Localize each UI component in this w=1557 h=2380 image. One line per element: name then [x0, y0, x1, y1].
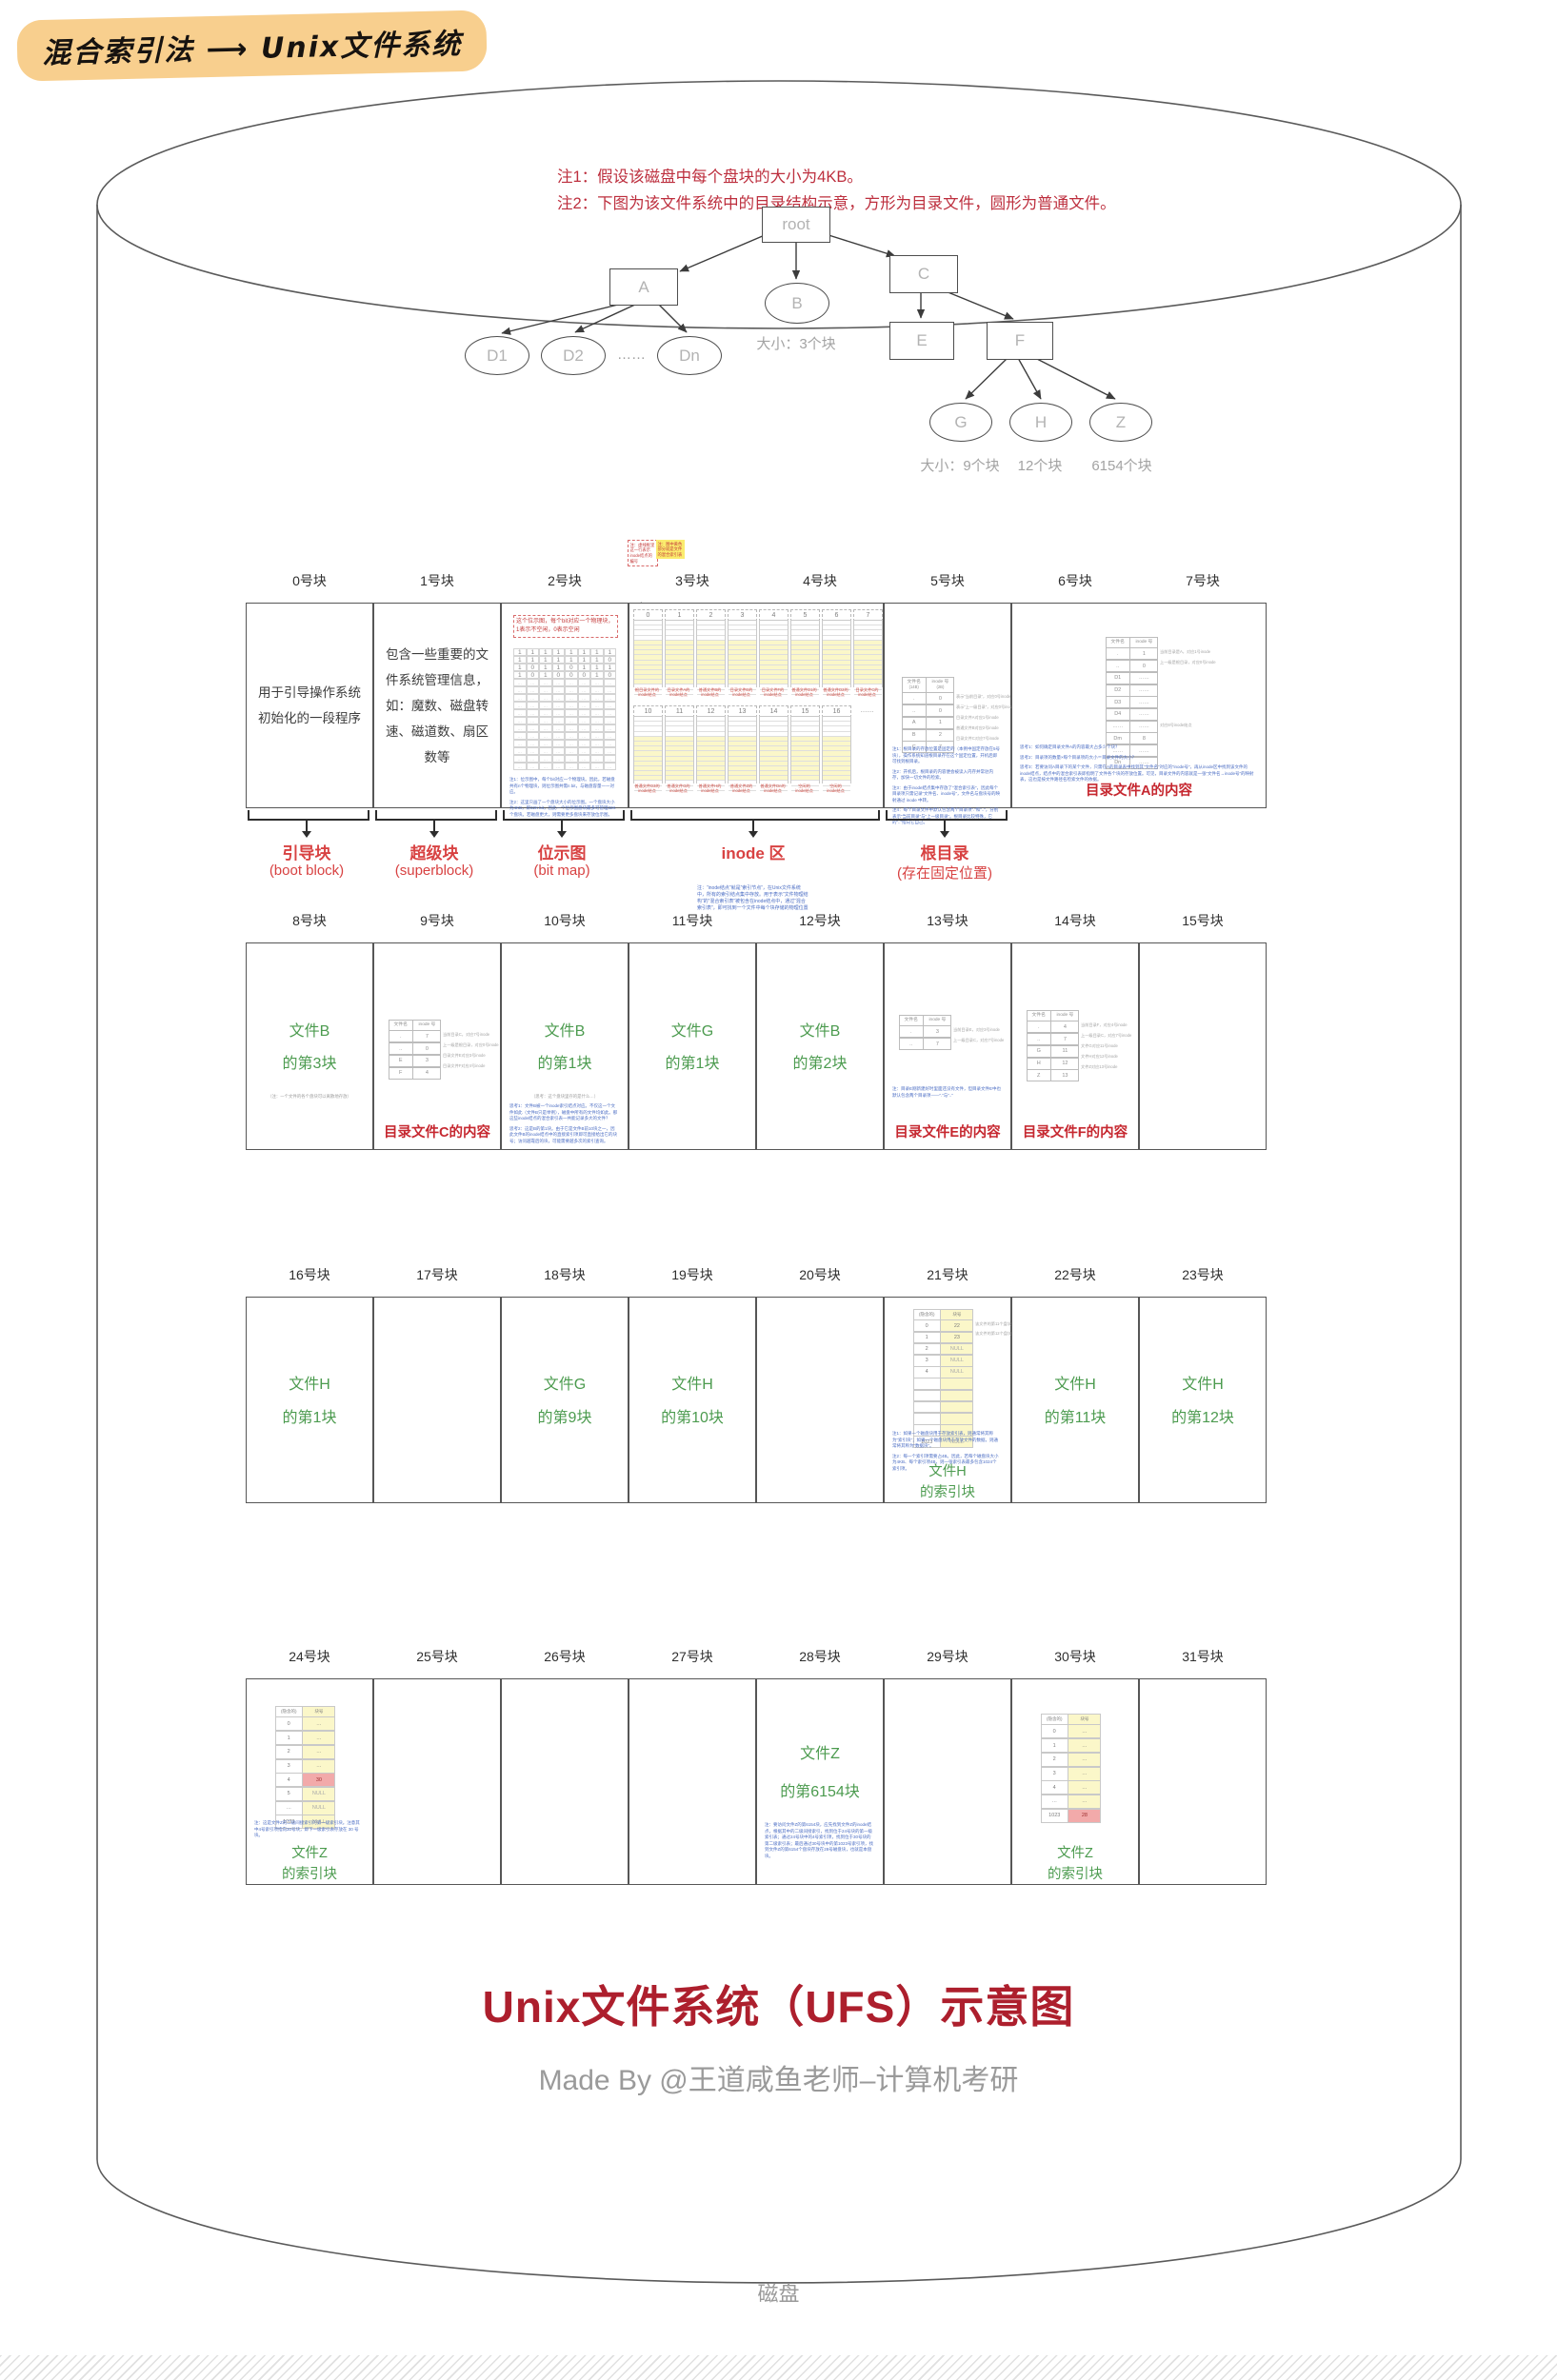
block-box	[629, 1678, 756, 1885]
blue-note: 思考3：若要访问A目录下的某个文件，只需在A的目录表中找到其“文件名”对应的“i…	[1020, 764, 1256, 783]
dir-row-note: 表示“当前目录”，对应0号inode	[956, 694, 1010, 700]
dir-col-title: 文件名	[905, 1018, 918, 1022]
dir-filename-cell: .	[1027, 1021, 1051, 1033]
bitmap-cell: …	[539, 702, 552, 709]
bitmap-cell: …	[552, 717, 566, 724]
block-box: 文件H的第11块	[1011, 1297, 1139, 1503]
bitmap-cell: …	[565, 686, 578, 694]
block-header: 7号块	[1139, 571, 1267, 590]
block-header: 22号块	[1011, 1265, 1139, 1284]
block-header: 8号块	[246, 911, 373, 930]
dir-content-caption: 目录文件F的内容	[1012, 1121, 1138, 1141]
inode-caption: 普通文件Z的inode结点	[726, 783, 757, 794]
block-description: 用于引导操作系统初始化的一段程序	[256, 604, 363, 807]
bitmap-cell: 0	[527, 671, 540, 679]
index-table-row: 022	[913, 1320, 973, 1332]
dir-inode-cell: 8	[1129, 732, 1158, 744]
dir-table-row: H12	[1027, 1058, 1079, 1070]
index-block-cell: …	[1068, 1767, 1101, 1781]
blue-notes: 注：目录E刚新建好时里面还没有文件，但目录文件E中也默认包含两个目录项——“.”…	[892, 1086, 1001, 1102]
dir-filename-cell: D3	[1106, 696, 1130, 708]
block-box	[1139, 1678, 1267, 1885]
bitmap-cell: …	[604, 702, 617, 709]
block-box: 文件名inode 号.4..7G11H12Z13当前目录F，对应4号inode上…	[1011, 942, 1139, 1150]
bitmap-cell: 1	[552, 656, 566, 664]
index-table-row: 3…	[1041, 1767, 1101, 1781]
file-block-label: 文件G	[629, 1018, 755, 1041]
file-block-label: 的第9块	[502, 1404, 628, 1427]
inode-caption-line: inode结点	[820, 788, 851, 793]
bitmap-cell: 1	[578, 648, 591, 656]
tree-node-dots: ……	[609, 345, 653, 364]
block-box	[756, 1297, 884, 1503]
dir-row-note: 当前目录是A，对应1号inode	[1160, 649, 1210, 655]
block-box: (隐含的)块号0…1…2…3…4305NULL…NULL1023NULL文件Z的…	[246, 1678, 373, 1885]
bitmap-cell: …	[552, 694, 566, 702]
dir-content-caption: 目录文件C的内容	[374, 1121, 500, 1141]
file-block-label: 的第12块	[1140, 1404, 1266, 1427]
tree-edge	[658, 304, 687, 332]
bitmap-cell: …	[604, 755, 617, 763]
dir-inode-cell: 1	[926, 717, 954, 729]
index-table-header-row: (隐含的)块号	[275, 1706, 335, 1717]
bitmap-cell: …	[539, 679, 552, 686]
index-table-row: 102328	[1041, 1809, 1101, 1823]
bitmap-cell: …	[527, 763, 540, 770]
block-header: 12号块	[756, 911, 884, 930]
index-table-row: 2…	[275, 1745, 335, 1759]
bitmap-cell: …	[513, 740, 527, 747]
bitmap-cell: …	[578, 717, 591, 724]
tree-edge	[966, 358, 1008, 399]
dir-filename-cell: ..	[902, 704, 927, 717]
bitmap-cell: 0	[552, 671, 566, 679]
dir-inode-cell: ……	[1129, 684, 1158, 697]
legend-title: 引导块	[283, 840, 331, 863]
index-logical-cell: 0	[913, 1319, 941, 1332]
dir-table-row: D1……	[1106, 672, 1158, 684]
dir-table-row: D4……	[1106, 708, 1158, 721]
file-block-label: 文件H	[629, 1371, 755, 1394]
dir-table-row: ..7	[899, 1038, 951, 1050]
dir-inode-cell: 0	[1129, 660, 1158, 672]
bitmap-cell: 1	[565, 648, 578, 656]
blue-notes: 注1：如果一个磁盘块用于存放索引表，则通常将其称为“索引块”；如果一个磁盘块用于…	[892, 1431, 1001, 1476]
block-box: 0根目录文件的inode结点1目录文件A的inode结点2普通文件B的inode…	[629, 603, 884, 808]
bitmap-cell: …	[578, 724, 591, 732]
block-box	[373, 1678, 501, 1885]
bitmap-cell: …	[565, 755, 578, 763]
file-block-label: 的第1块	[629, 1050, 755, 1073]
block-header: 28号块	[756, 1647, 884, 1666]
index-block-cell: NULL	[302, 1801, 335, 1815]
bitmap-cell: 1	[578, 656, 591, 664]
bitmap-cell: 1	[513, 671, 527, 679]
bitmap-cell: …	[604, 679, 617, 686]
inode-yellow-note: 注：图中黄色部分就是文件的混合索引表	[656, 540, 685, 559]
bitmap-cell: …	[604, 740, 617, 747]
block-header: 1号块	[373, 571, 501, 590]
inode-caption-line: inode结点	[726, 788, 757, 793]
blue-note: 注2：每一个索引项需要占4B。因此，若每个磁盘块大小为4KB、每个索引项4B，则…	[892, 1454, 1001, 1473]
inode-caption: 普通文件D2的inode结点	[820, 687, 851, 698]
block-header: 31号块	[1139, 1647, 1267, 1666]
blue-notes: 思考1：文件B被一个inode索引结点对应。不仅这一个文件如此（文件B只是举例）…	[509, 1103, 618, 1148]
legend-bracket	[375, 810, 497, 821]
bitmap-cell: …	[590, 740, 604, 747]
dir-inode-cell: 2	[926, 729, 954, 742]
bitmap-cell: 1	[513, 664, 527, 671]
index-block-cell: NULL	[940, 1343, 973, 1356]
index-block-caption: 的索引块	[885, 1481, 1010, 1501]
dir-table-header-cell: inode 号	[923, 1015, 951, 1026]
inode-caption-line: inode结点	[694, 788, 726, 793]
blue-note: 思考2：目录项的数量×每个目录项的大小＝目录文件的大小？	[1020, 755, 1256, 762]
dir-table-row: ..0	[902, 704, 954, 717]
block-header: 21号块	[884, 1265, 1011, 1284]
bitmap-cell: …	[590, 702, 604, 709]
block-box: 文件G的第9块	[501, 1297, 629, 1503]
bitmap-cell: …	[527, 724, 540, 732]
block-box: 文件名(14B)inode 号(2B).0..0A1B2C7表示“当前目录”，对…	[884, 603, 1011, 808]
blue-note: 注3：由于inode结点集中存放了“混合索引表”，因此每个目录项只需记录“文件名…	[892, 785, 1001, 804]
index-block-cell: 28	[1068, 1809, 1101, 1823]
inode-caption-line: inode结点	[820, 692, 851, 697]
dir-col-title: inode 号	[418, 1022, 435, 1027]
block-header: 25号块	[373, 1647, 501, 1666]
block-box: 文件H的第1块	[246, 1297, 373, 1503]
dir-col-title: 文件名	[394, 1022, 408, 1027]
tree-edge	[1035, 358, 1115, 399]
dir-inode-cell: 1	[1129, 647, 1158, 660]
dir-col-sub: (2B)	[936, 685, 944, 690]
bitmap-cell: …	[539, 763, 552, 770]
dir-row-note: 对应8号inode结点	[1160, 723, 1192, 728]
bitmap-cell: 1	[590, 664, 604, 671]
inode-caption: 普通文件G的inode结点	[663, 783, 694, 794]
block-header: 20号块	[756, 1265, 884, 1284]
bitmap-cell: 1	[539, 656, 552, 664]
bottom-hatch-texture	[0, 2355, 1557, 2380]
bitmap-cell: 1	[527, 656, 540, 664]
bitmap-cell: …	[590, 724, 604, 732]
block-box	[501, 1678, 629, 1885]
block-box: 这个位示图，每个bit对应一个物理块，1表示不空闲，0表示空闲111111111…	[501, 603, 629, 808]
block-header: 24号块	[246, 1647, 373, 1666]
dir-inode-cell: ……	[1129, 708, 1158, 721]
block-box: 文件名inode 号.3..7当前目录E，对应3号inode上一级目录C，对应7…	[884, 942, 1011, 1150]
block-header: 14号块	[1011, 911, 1139, 930]
dir-table-row: D3……	[1106, 697, 1158, 709]
index-block-cell	[940, 1390, 973, 1402]
index-logical-cell: 0	[275, 1716, 303, 1731]
index-table-header-cell: (隐含的)	[913, 1309, 941, 1320]
index-logical-cell: 1	[913, 1332, 941, 1344]
bitmap-cell: …	[565, 763, 578, 770]
inode-id-note: 注：虚线框里这一行表示inode结点的编号	[628, 540, 658, 566]
top-notes: 注1：假设该磁盘中每个盘块的大小为4KB。 注2：下图为该文件系统中的目录结构示…	[557, 164, 1116, 217]
block-header: 4号块	[756, 571, 884, 590]
tree-node-G: G	[929, 403, 992, 442]
index-table-row: 1…	[275, 1731, 335, 1745]
inode-card	[728, 620, 757, 687]
index-block-caption: 的索引块	[247, 1863, 372, 1883]
dir-filename-cell: ..	[1106, 660, 1130, 672]
index-table: (隐含的)块号0…1…2…3…4………102328	[1041, 1714, 1101, 1823]
bitmap-cell: …	[527, 702, 540, 709]
block-header: 11号块	[629, 911, 756, 930]
dir-filename-cell: G	[1027, 1045, 1051, 1058]
diagram-title: Unix文件系统（UFS）示意图	[0, 1973, 1557, 2035]
bitmap-cell: …	[552, 702, 566, 709]
index-block-cell: …	[1068, 1753, 1101, 1767]
block-header: 30号块	[1011, 1647, 1139, 1666]
inode-caption: 空闲的inode结点	[788, 783, 820, 794]
bitmap-cell: …	[539, 686, 552, 694]
index-block-cell: …	[1068, 1738, 1101, 1753]
dir-table-row: F4	[389, 1067, 441, 1080]
dir-col-sub: (14B)	[909, 685, 919, 690]
dir-filename-cell: H	[1027, 1058, 1051, 1070]
bitmap-cell: …	[539, 755, 552, 763]
inode-card	[696, 716, 726, 783]
bitmap-cell: …	[565, 747, 578, 755]
file-block-label: 文件B	[247, 1018, 372, 1041]
index-table-header-cell: 块号	[1068, 1714, 1101, 1725]
dir-row-note: 目录文件F对应4号inode	[443, 1063, 485, 1069]
index-table: (隐含的)块号0…1…2…3…4305NULL…NULL1023NULL	[275, 1706, 335, 1829]
tree-node-D1: D1	[465, 336, 529, 375]
dir-inode-cell: 7	[923, 1038, 951, 1050]
dir-table-header-row: 文件名inode 号	[1027, 1010, 1079, 1021]
inode-card	[790, 716, 820, 783]
tree-node-F: F	[987, 322, 1053, 360]
dir-filename-cell: ……	[1106, 721, 1130, 733]
bitmap-cell: …	[590, 686, 604, 694]
inode-caption-line: inode结点	[694, 692, 726, 697]
index-logical-cell: 4	[1041, 1780, 1068, 1795]
index-table-row: ……	[1041, 1795, 1101, 1809]
tree-node-D2: D2	[541, 336, 606, 375]
dir-table-header-cell: 文件名	[389, 1020, 413, 1031]
bitmap-cell: …	[604, 717, 617, 724]
tree-node-root: root	[762, 207, 830, 243]
index-logical-cell: 1	[1041, 1738, 1068, 1753]
bitmap-cell: 0	[565, 664, 578, 671]
index-table-header-cell: (隐含的)	[1041, 1714, 1068, 1725]
bitmap-cell: …	[513, 724, 527, 732]
dir-content-caption: 目录文件E的内容	[885, 1121, 1010, 1141]
legend-subtitle: (存在固定位置)	[897, 863, 992, 883]
bitmap-cell: …	[539, 732, 552, 740]
bitmap-cell: …	[604, 747, 617, 755]
file-block-label: 文件B	[757, 1018, 883, 1041]
dir-row-note: 目录文件E对应3号inode	[443, 1053, 486, 1059]
bitmap-cell: …	[578, 755, 591, 763]
inode-caption: 根目录文件的inode结点	[631, 687, 663, 698]
bitmap-cell: …	[527, 709, 540, 717]
dir-filename-cell: ..	[899, 1038, 924, 1050]
bitmap-cell: …	[513, 686, 527, 694]
inode-card	[633, 620, 663, 687]
dir-table-row: Dm8	[1106, 733, 1158, 745]
dir-filename-cell: .	[1106, 647, 1130, 660]
inode-card	[759, 716, 788, 783]
index-table-row: 2…	[1041, 1753, 1101, 1767]
bitmap-cell: …	[590, 732, 604, 740]
tree-node-B: B	[765, 283, 829, 324]
dir-col-title: 文件名	[1032, 1013, 1046, 1018]
index-block-cell	[940, 1413, 973, 1425]
inode-caption-line: inode结点	[788, 788, 820, 793]
inode-caption-line: inode结点	[663, 788, 694, 793]
block-header: 13号块	[884, 911, 1011, 930]
diagram-canvas: 混合索引法 ⟶ Unix文件系统 注1：假设该磁盘中每个盘块的大小为4KB。 注…	[0, 0, 1557, 2380]
dir-inode-cell: 0	[926, 704, 954, 717]
index-block-cell: 22	[940, 1319, 973, 1332]
dir-table-header-cell: inode 号	[1050, 1010, 1079, 1021]
blue-notes: 注：这是文件Z的二级间接索引的第一级索引块。注意其中4号索引项指向30号块，即下…	[254, 1820, 363, 1843]
bitmap-cell: …	[604, 724, 617, 732]
dir-filename-cell: .	[899, 1025, 924, 1038]
dir-table-row: .0	[902, 693, 954, 705]
block-header: 15号块	[1139, 911, 1267, 930]
dir-row-note: 上一级目录C，对应7号inode	[953, 1038, 1004, 1043]
index-table-row: 0…	[275, 1717, 335, 1732]
dir-table-row: B2	[902, 729, 954, 742]
dir-table-row: Z13	[1027, 1070, 1079, 1082]
bitmap-cell: …	[604, 694, 617, 702]
bitmap-cell: …	[590, 755, 604, 763]
index-logical-cell: 2	[275, 1745, 303, 1759]
dir-row-note: 表示“上一级目录”，对应0号inode	[956, 704, 1014, 710]
block-header: 16号块	[246, 1265, 373, 1284]
dir-filename-cell: .	[389, 1030, 413, 1042]
bitmap-cell: …	[552, 747, 566, 755]
block-box: (隐含的)块号0221232NULL3NULL4NULL1023NULL该文件的…	[884, 1297, 1011, 1503]
dir-inode-cell: ……	[1129, 721, 1158, 733]
dir-table-row: ..0	[389, 1042, 441, 1055]
index-logical-cell: …	[275, 1801, 303, 1815]
index-logical-cell: 4	[913, 1366, 941, 1378]
inode-number-cell: ……	[853, 705, 881, 716]
inode-caption-line: inode结点	[788, 692, 820, 697]
index-table-row	[913, 1390, 973, 1401]
inode-caption-line: inode结点	[631, 692, 663, 697]
inode-card	[696, 620, 726, 687]
file-block-label: 文件Z	[757, 1740, 883, 1763]
inode-card	[853, 620, 883, 687]
bitmap-cell: …	[590, 747, 604, 755]
index-table-row: 123	[913, 1332, 973, 1343]
dir-table-row: D2……	[1106, 684, 1158, 697]
dir-table-row: .3	[899, 1026, 951, 1039]
dir-table-header-row: 文件名(14B)inode 号(2B)	[902, 677, 954, 693]
dir-table-row: …………	[1106, 721, 1158, 733]
dir-table-header-cell: 文件名(14B)	[902, 677, 927, 693]
index-block-cell: …	[1068, 1780, 1101, 1795]
index-block-cell	[940, 1378, 973, 1390]
index-table: (隐含的)块号0221232NULL3NULL4NULL1023NULL	[913, 1309, 973, 1448]
index-logical-cell	[913, 1401, 941, 1414]
tree-node-Z: Z	[1089, 403, 1152, 442]
dir-table: 文件名inode 号.7..0E3F4	[389, 1020, 441, 1080]
index-table-header-row: (隐含的)块号	[1041, 1714, 1101, 1725]
blue-note: 注：要访问文件Z的第6154块，应先找到文件Z的inode结点，根据其中的二级间…	[765, 1822, 873, 1859]
bitmap-cell: 1	[513, 648, 527, 656]
bitmap-cell: …	[513, 717, 527, 724]
legend-bracket	[886, 810, 1008, 821]
index-table-row: …NULL	[275, 1801, 335, 1815]
index-table-row: 1…	[1041, 1738, 1101, 1753]
block-box: (隐含的)块号0…1…2…3…4………102328文件Z的索引块	[1011, 1678, 1139, 1885]
bitmap-cell: …	[578, 763, 591, 770]
dir-row-note: 上一级是根目录，对应0号inode	[1160, 660, 1216, 665]
file-block-label: 的第11块	[1012, 1404, 1138, 1427]
dir-filename-cell: D1	[1106, 672, 1130, 684]
blue-note: 注：这是文件Z的二级间接索引的第一级索引块。注意其中4号索引项指向30号块，即下…	[254, 1820, 363, 1839]
bitmap-cell: …	[578, 709, 591, 717]
file-block-label: 的第3块	[247, 1050, 372, 1073]
bitmap-cell: …	[539, 709, 552, 717]
dir-table-header-row: 文件名inode 号	[389, 1020, 441, 1031]
dir-inode-cell: 3	[923, 1025, 951, 1038]
inode-caption-line: inode结点	[726, 692, 757, 697]
dir-filename-cell: B	[902, 729, 927, 742]
bitmap-cell: 1	[539, 648, 552, 656]
diagram-credit: Made By @王道咸鱼老师–计算机考研	[0, 2056, 1557, 2098]
blue-notes: 思考1：如何确定目录文件A的内容最大占多少个块？思考2：目录项的数量×每个目录项…	[1020, 744, 1256, 787]
bitmap-cell: …	[578, 732, 591, 740]
block-box: 文件B的第2块	[756, 942, 884, 1150]
bitmap-cell: …	[552, 755, 566, 763]
dir-table-header-row: 文件名inode 号	[899, 1015, 951, 1026]
file-block-label: 的第6154块	[757, 1778, 883, 1801]
bitmap-cell: …	[513, 702, 527, 709]
grey-mini-note: （思考：这个盘块里存的是什么…）	[506, 1094, 624, 1100]
bitmap-cell: 1	[552, 664, 566, 671]
bitmap-cell: …	[552, 724, 566, 732]
handwritten-topic: 混合索引法 ⟶ Unix文件系统	[16, 10, 488, 81]
dir-filename-cell: E	[389, 1055, 413, 1067]
bitmap-cell: 1	[590, 671, 604, 679]
bitmap-cell: …	[604, 709, 617, 717]
dir-table-header-cell: inode 号(2B)	[926, 677, 954, 693]
file-block-label: 文件H	[1140, 1371, 1266, 1394]
bitmap-cell: 1	[565, 656, 578, 664]
inode-caption: 目录文件E的inode结点	[726, 687, 757, 698]
bitmap-cell: …	[539, 694, 552, 702]
inode-caption-line: inode结点	[663, 692, 694, 697]
index-logical-cell: 3	[1041, 1767, 1068, 1781]
bitmap-cell: …	[552, 763, 566, 770]
dir-filename-cell: ..	[1027, 1033, 1051, 1045]
inode-card	[759, 620, 788, 687]
dir-row-note: 当前目录E，对应3号inode	[953, 1027, 1000, 1033]
bitmap-cell: …	[527, 755, 540, 763]
blue-note: 思考1：文件B被一个inode索引结点对应。不仅这一个文件如此（文件B只是举例）…	[509, 1103, 618, 1122]
dir-table-row: E3	[389, 1055, 441, 1067]
legend-title: inode 区	[721, 840, 785, 863]
bitmap-cell: 0	[604, 671, 617, 679]
dir-filename-cell: F	[389, 1067, 413, 1080]
legend-note: 注：“inode结点”就是“索引节点”，在Unix文件系统中，所有的索引结点集中…	[697, 885, 809, 912]
legend-subtitle: (superblock)	[395, 863, 474, 879]
index-block-cell: …	[302, 1716, 335, 1731]
bitmap-cell: …	[527, 694, 540, 702]
bitmap-cell: …	[590, 717, 604, 724]
dir-row-note: 目录文件C对应7号inode	[956, 736, 999, 742]
